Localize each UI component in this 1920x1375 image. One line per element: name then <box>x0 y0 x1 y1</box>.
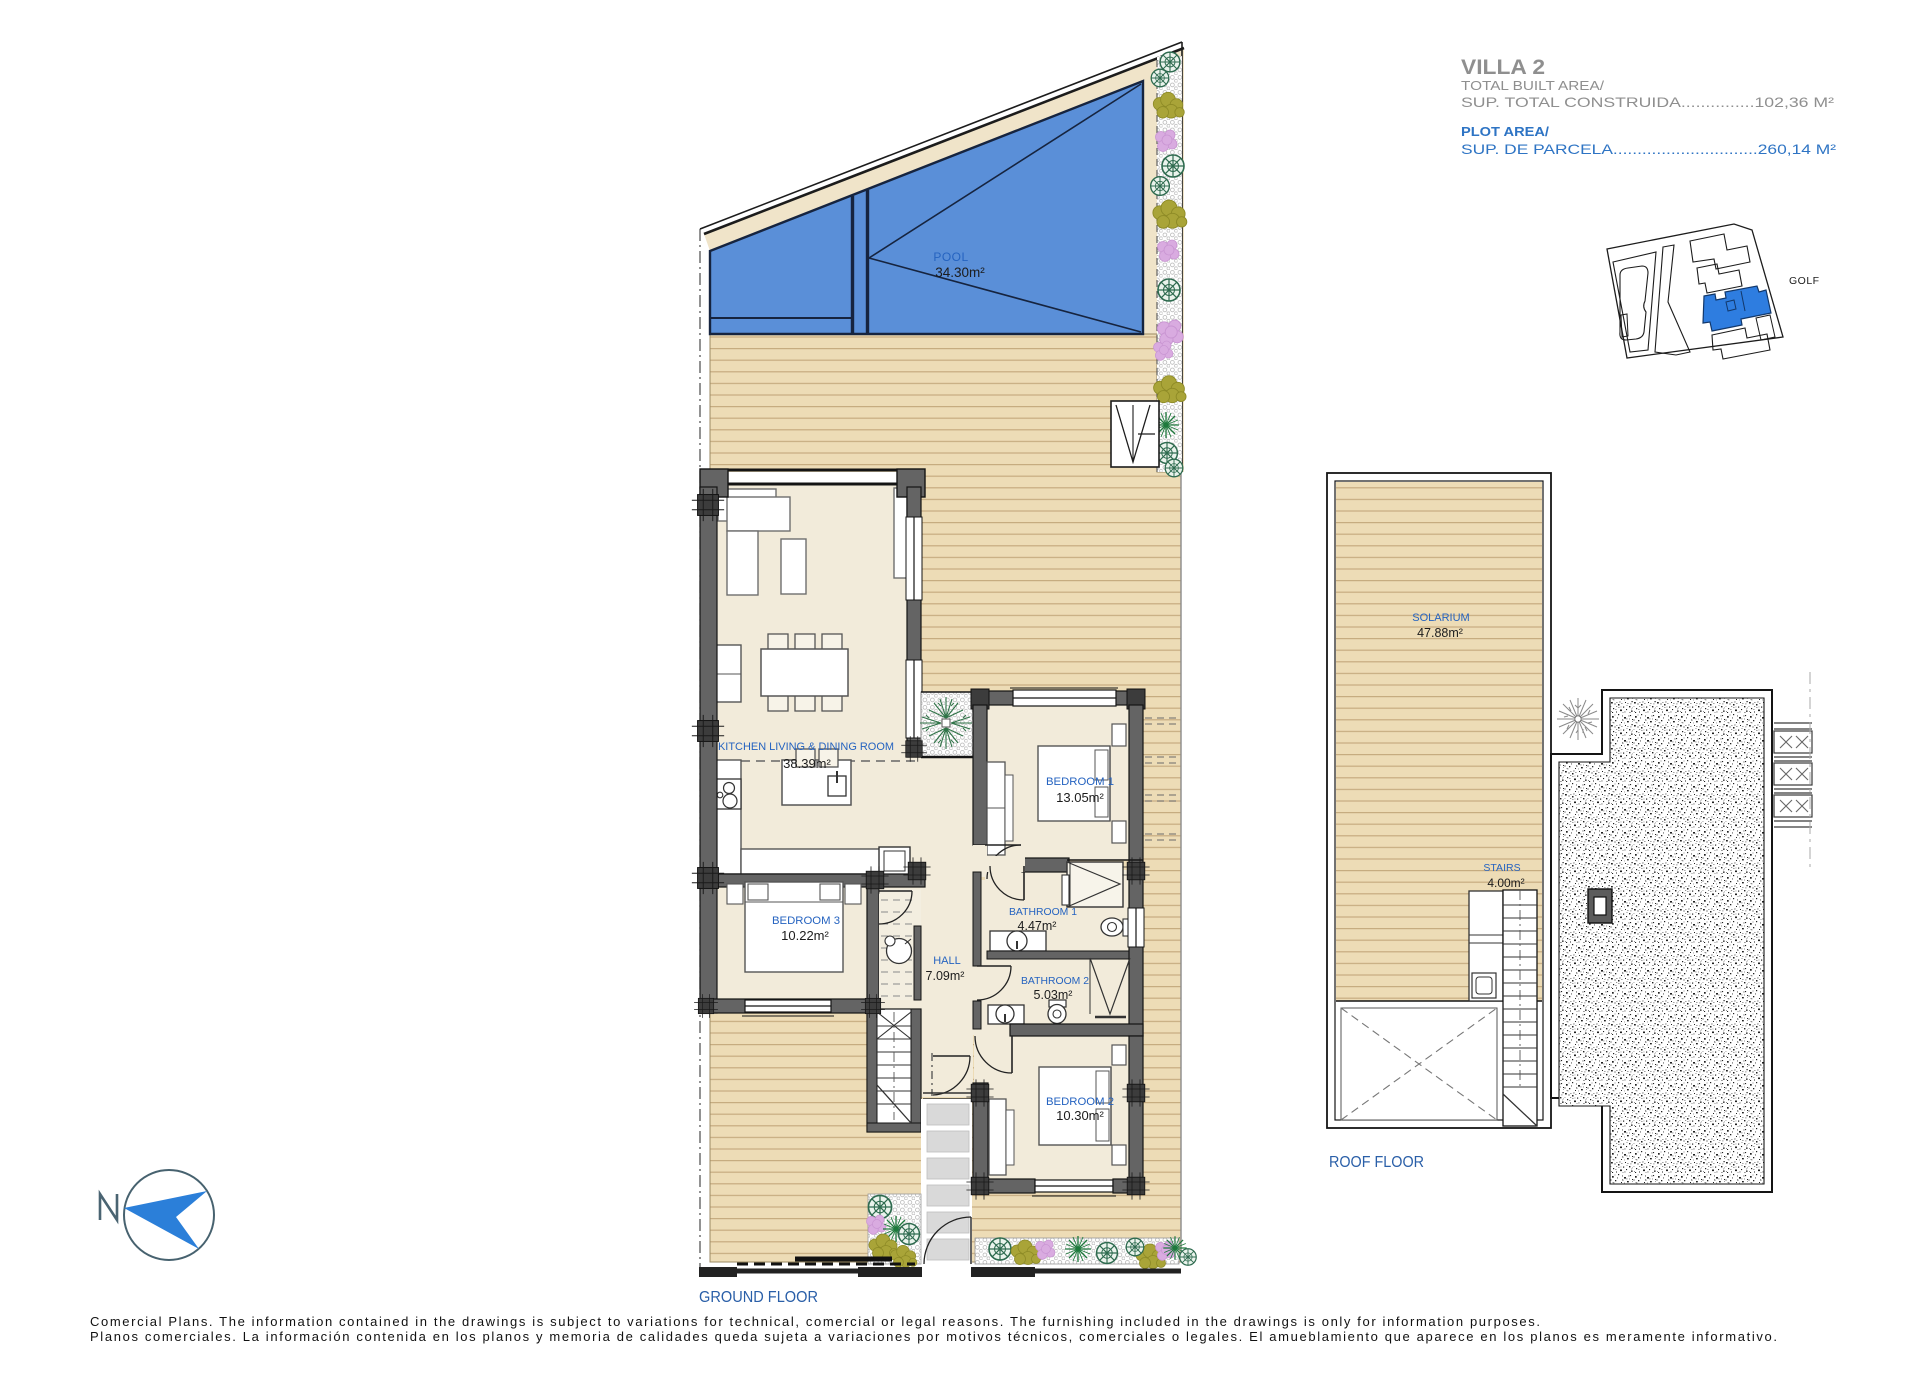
svg-text:STAIRS: STAIRS <box>1483 862 1520 874</box>
svg-text:HALL: HALL <box>933 955 961 967</box>
svg-text:SUP. TOTAL CONSTRUIDA.........: SUP. TOTAL CONSTRUIDA...............102,… <box>1461 94 1834 110</box>
svg-text:7.09m²: 7.09m² <box>926 969 965 983</box>
svg-text:47.88m²: 47.88m² <box>1417 626 1463 640</box>
svg-text:BATHROOM 2: BATHROOM 2 <box>1021 975 1089 987</box>
svg-text:VILLA 2: VILLA 2 <box>1461 56 1545 79</box>
svg-text:ROOF FLOOR: ROOF FLOOR <box>1329 1154 1424 1171</box>
svg-text:4.47m²: 4.47m² <box>1018 919 1057 933</box>
svg-text:SOLARIUM: SOLARIUM <box>1412 612 1469 624</box>
svg-text:BEDROOM 2: BEDROOM 2 <box>1046 1096 1114 1108</box>
svg-text:34.30m²: 34.30m² <box>935 265 985 280</box>
svg-text:Planos comerciales. La informa: Planos comerciales. La información conte… <box>90 1329 1777 1344</box>
svg-text:4.00m²: 4.00m² <box>1487 876 1524 890</box>
svg-text:POOL: POOL <box>933 250 968 264</box>
svg-text:10.22m²: 10.22m² <box>781 928 829 943</box>
svg-text:13.05m²: 13.05m² <box>1056 790 1104 805</box>
svg-text:BATHROOM 1: BATHROOM 1 <box>1009 906 1077 918</box>
svg-text:SUP. DE PARCELA...............: SUP. DE PARCELA.........................… <box>1461 141 1836 157</box>
svg-text:BEDROOM 3: BEDROOM 3 <box>772 915 840 927</box>
svg-text:GOLF: GOLF <box>1789 275 1820 287</box>
svg-text:KITCHEN LIVING & DINING R: KITCHEN LIVING & DINING ROOM <box>718 741 894 753</box>
svg-text:Comercial Plans. The informati: Comercial Plans. The information contain… <box>90 1314 1540 1329</box>
svg-text:5.03m²: 5.03m² <box>1034 988 1073 1002</box>
svg-text:PLOT AREA/: PLOT AREA/ <box>1461 125 1550 139</box>
svg-text:BEDROOM 1: BEDROOM 1 <box>1046 776 1114 788</box>
svg-text:38.39m²: 38.39m² <box>783 756 831 771</box>
svg-text:GROUND FLOOR: GROUND FLOOR <box>699 1289 818 1306</box>
svg-text:TOTAL BUILT AREA/: TOTAL BUILT AREA/ <box>1461 79 1605 93</box>
svg-text:10.30m²: 10.30m² <box>1056 1108 1104 1123</box>
